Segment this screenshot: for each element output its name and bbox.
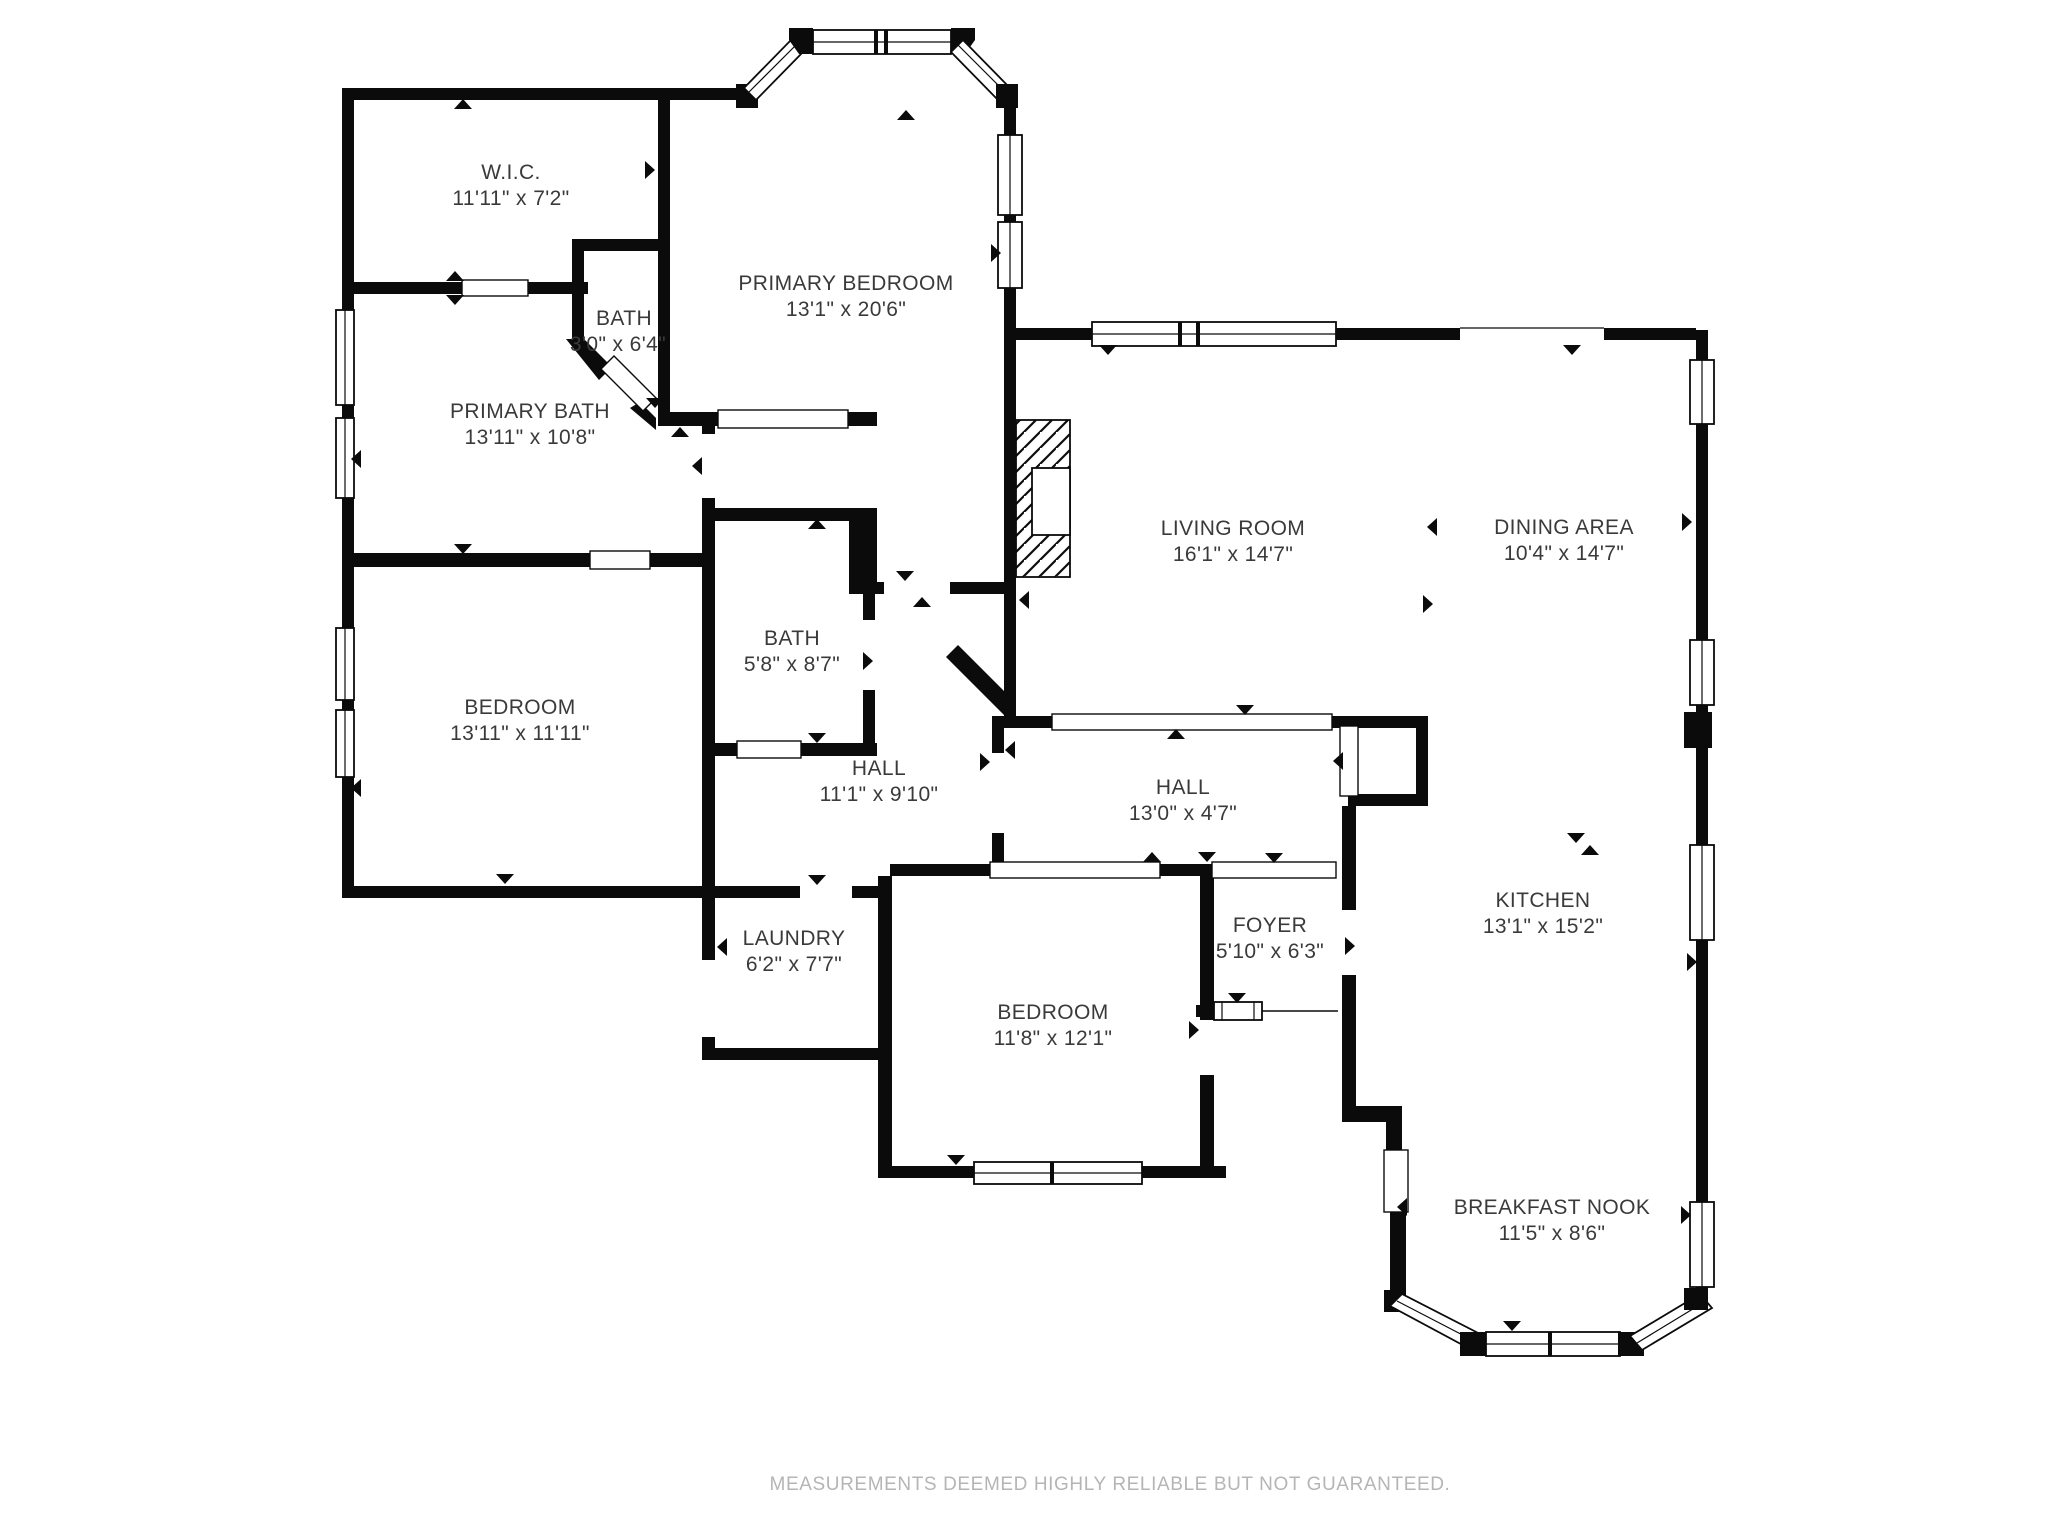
door-swing-marker — [1198, 852, 1216, 862]
door-swing-marker — [1581, 845, 1599, 855]
door-swing-marker — [446, 295, 464, 305]
floor-plan-page: W.I.C. 11'11" x 7'2" BATH 3'0" x 6'4" PR… — [0, 0, 2048, 1536]
door-swing-marker — [446, 271, 464, 281]
room-dims: 13'0" x 4'7" — [1129, 802, 1237, 825]
room-dims: 11'8" x 12'1" — [994, 1027, 1113, 1050]
room-dims: 13'1" x 20'6" — [786, 298, 906, 321]
room-label-primary-bath: PRIMARY BATH 13'11" x 10'8" — [450, 400, 610, 449]
room-name: PRIMARY BATH — [450, 400, 610, 423]
room-dims: 11'11" x 7'2" — [452, 187, 569, 210]
door-swing-marker — [913, 597, 931, 607]
room-dims: 13'1" x 15'2" — [1483, 915, 1603, 938]
room-dims: 11'5" x 8'6" — [1499, 1222, 1606, 1245]
room-label-dining-area: DINING AREA 10'4" x 14'7" — [1494, 516, 1634, 565]
door-swing-marker — [808, 733, 826, 743]
room-name: FOYER — [1233, 914, 1307, 937]
room-name: BEDROOM — [464, 696, 575, 719]
door-swing-marker — [1099, 345, 1117, 355]
door-swing-marker — [980, 753, 990, 771]
door-swing-marker — [1567, 833, 1585, 843]
door-swing-marker — [1503, 1321, 1521, 1331]
room-name: DINING AREA — [1494, 516, 1634, 539]
room-name: BEDROOM — [997, 1001, 1108, 1024]
room-name: BATH — [596, 307, 652, 330]
room-dims: 3'0" x 6'4" — [570, 333, 666, 356]
door-swing-marker — [454, 99, 472, 109]
window-bedroom-south — [974, 1162, 1142, 1184]
door-swing-marker — [692, 457, 702, 475]
room-label-breakfast-nook: BREAKFAST NOOK 11'5" x 8'6" — [1454, 1196, 1651, 1245]
room-label-living-room: LIVING ROOM 16'1" x 14'7" — [1161, 517, 1305, 566]
door-swing-marker — [1563, 345, 1581, 355]
door-swing-marker — [1333, 752, 1343, 770]
room-label-bath-small: BATH 3'0" x 6'4" — [570, 307, 666, 356]
door-swing-marker — [454, 544, 472, 554]
bay-window-primary-bedroom — [736, 28, 1018, 108]
room-dims: 13'11" x 10'8" — [465, 426, 596, 449]
door-swing-marker — [896, 571, 914, 581]
door-swing-marker — [717, 938, 727, 956]
door-swing-marker — [1427, 518, 1437, 536]
room-label-hall-west: HALL 11'1" x 9'10" — [820, 757, 939, 806]
room-label-bedroom-west: BEDROOM 13'11" x 11'11" — [450, 696, 590, 745]
room-label-wic: W.I.C. 11'11" x 7'2" — [452, 161, 569, 210]
door-swing-marker — [1682, 513, 1692, 531]
room-name: LAUNDRY — [743, 927, 846, 950]
bay-window-breakfast-nook — [1384, 1288, 1712, 1356]
room-name: PRIMARY BEDROOM — [738, 272, 953, 295]
room-label-bedroom-south: BEDROOM 11'8" x 12'1" — [994, 1001, 1113, 1050]
room-dims: 5'10" x 6'3" — [1216, 940, 1324, 963]
door-swing-marker — [808, 875, 826, 885]
door-swing-marker — [671, 427, 689, 437]
window-group-primary-bedroom-east — [998, 135, 1022, 288]
room-dims: 10'4" x 14'7" — [1504, 542, 1624, 565]
room-name: HALL — [1156, 776, 1210, 799]
room-name: BREAKFAST NOOK — [1454, 1196, 1651, 1219]
door-swing-marker — [1423, 595, 1433, 613]
door-swing-marker — [897, 110, 915, 120]
room-name: KITCHEN — [1496, 889, 1591, 912]
floor-plan-canvas: W.I.C. 11'11" x 7'2" BATH 3'0" x 6'4" PR… — [0, 0, 2048, 1536]
room-label-laundry: LAUNDRY 6'2" x 7'7" — [743, 927, 846, 976]
room-label-hall-bath: BATH 5'8" x 8'7" — [744, 627, 840, 676]
fireplace — [1016, 420, 1070, 577]
room-dims: 16'1" x 14'7" — [1173, 543, 1293, 566]
room-dims: 6'2" x 7'7" — [746, 953, 842, 976]
room-name: HALL — [852, 757, 906, 780]
door-swing-marker — [1019, 591, 1029, 609]
room-label-foyer: FOYER 5'10" x 6'3" — [1216, 914, 1324, 963]
door-swing-marker — [496, 874, 514, 884]
room-name: BATH — [764, 627, 820, 650]
room-dims: 13'11" x 11'11" — [450, 722, 590, 745]
disclaimer-text: MEASUREMENTS DEEMED HIGHLY RELIABLE BUT … — [770, 1474, 1451, 1495]
room-dims: 5'8" x 8'7" — [744, 653, 840, 676]
room-label-hall-east: HALL 13'0" x 4'7" — [1129, 776, 1237, 825]
room-label-primary-bedroom: PRIMARY BEDROOM 13'1" x 20'6" — [738, 272, 953, 321]
door-swing-marker — [1005, 741, 1015, 759]
door-swing-marker — [1687, 953, 1697, 971]
room-label-kitchen: KITCHEN 13'1" x 15'2" — [1483, 889, 1603, 938]
door-swing-marker — [1143, 852, 1161, 862]
door-swing-marker — [645, 161, 655, 179]
door-swing-marker — [947, 1155, 965, 1165]
room-name: W.I.C. — [481, 161, 541, 184]
door-swing-marker — [1189, 1021, 1199, 1039]
room-dims: 11'1" x 9'10" — [820, 783, 939, 806]
room-name: LIVING ROOM — [1161, 517, 1305, 540]
